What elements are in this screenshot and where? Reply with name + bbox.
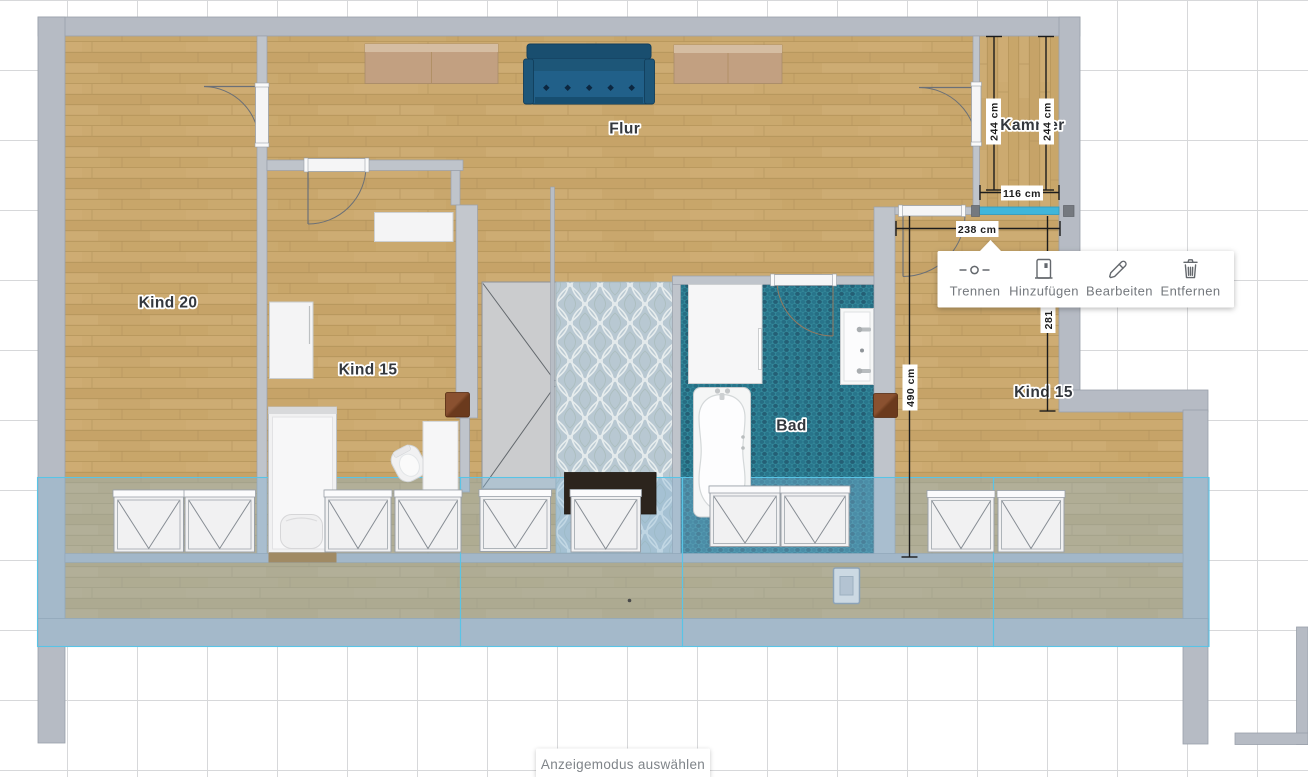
svg-text:244 cm: 244 cm — [989, 102, 1001, 141]
svg-text:238 cm: 238 cm — [958, 224, 997, 236]
svg-text:Kind 15: Kind 15 — [339, 362, 398, 379]
svg-text:Bad: Bad — [776, 418, 806, 435]
svg-text:490 cm: 490 cm — [905, 368, 917, 407]
svg-text:Bearbeiten: Bearbeiten — [1086, 284, 1153, 299]
svg-text:Kind 15: Kind 15 — [1014, 384, 1073, 401]
svg-text:Hinzufügen: Hinzufügen — [1009, 284, 1079, 299]
svg-text:244 cm: 244 cm — [1042, 102, 1054, 141]
svg-text:Anzeigemodus auswählen: Anzeigemodus auswählen — [541, 757, 705, 772]
svg-text:116 cm: 116 cm — [1003, 188, 1041, 200]
svg-text:Flur: Flur — [609, 121, 640, 138]
svg-text:Entfernen: Entfernen — [1161, 284, 1221, 299]
svg-text:Trennen: Trennen — [950, 284, 1001, 299]
svg-text:Kammer: Kammer — [1000, 117, 1064, 134]
svg-text:Kind 20: Kind 20 — [139, 295, 198, 312]
